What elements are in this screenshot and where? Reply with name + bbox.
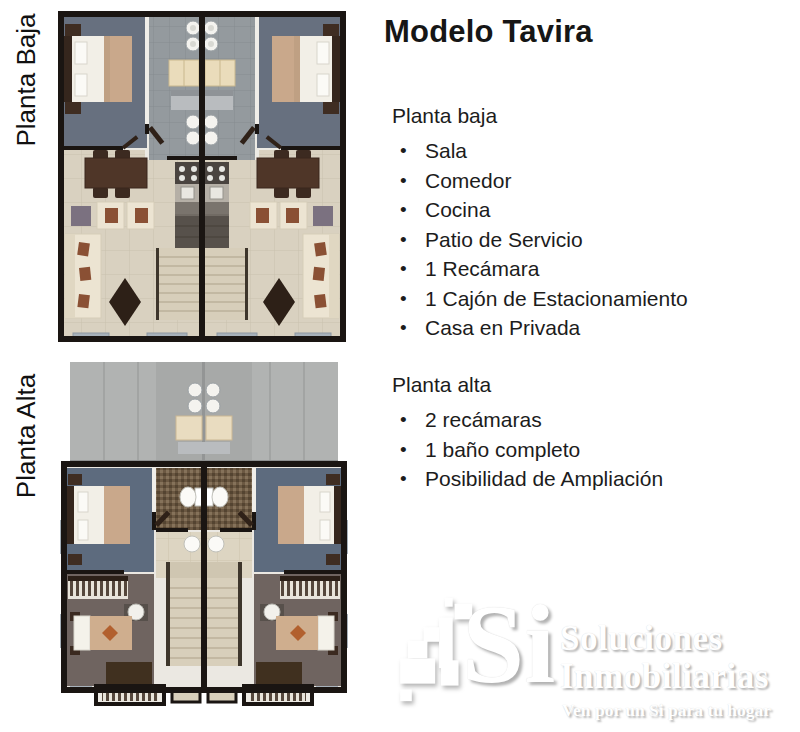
- list-item: 1 Recámara: [392, 254, 790, 284]
- list-item: Comedor: [392, 166, 790, 196]
- planta-alta-floorplan: [58, 362, 350, 707]
- si-logo-mark: Si: [462, 588, 555, 700]
- planta-alta-heading: Planta alta: [392, 373, 790, 397]
- washer: [171, 90, 199, 110]
- closet: [68, 576, 128, 599]
- planta-baja-heading: Planta baja: [392, 104, 790, 128]
- dresser: [106, 662, 152, 684]
- list-item: Casa en Privada: [392, 313, 790, 343]
- planta-alta-features: Planta alta 2 recámaras 1 baño completo …: [392, 373, 790, 494]
- bed: [63, 24, 132, 114]
- company-name: Soluciones Inmobiliarias: [560, 620, 769, 696]
- party-wall: [199, 14, 205, 339]
- page-title: Modelo Tavira: [384, 14, 593, 50]
- list-item: Sala: [392, 136, 790, 166]
- list-item: Cocina: [392, 195, 790, 225]
- planta-alta-side-label: Planta Alta: [9, 361, 43, 511]
- planta-baja-side-label: Planta Baja: [9, 5, 43, 155]
- list-item: 1 baño completo: [392, 435, 790, 465]
- side-table: [71, 206, 91, 226]
- brochure-page: Planta Baja Planta Alta: [0, 0, 800, 732]
- planta-baja-list: Sala Comedor Cocina Patio de Servicio 1 …: [392, 136, 790, 343]
- company-name-line1: Soluciones: [560, 620, 769, 658]
- planta-alta-list: 2 recámaras 1 baño completo Posibilidad …: [392, 405, 790, 494]
- list-item: 1 Cajón de Estacionamiento: [392, 284, 790, 314]
- planta-baja-left-unit: [59, 16, 202, 340]
- sofa: [65, 234, 101, 318]
- list-item: Posibilidad de Ampliación: [392, 464, 790, 494]
- planta-baja-features: Planta baja Sala Comedor Cocina Patio de…: [392, 104, 790, 343]
- list-item: 2 recámaras: [392, 405, 790, 435]
- party-wall: [201, 464, 207, 690]
- planta-baja-floorplan: [57, 10, 347, 343]
- company-tagline: Ven por un Si para tu hogar: [562, 700, 771, 721]
- roof: [70, 362, 338, 465]
- single-bed: [70, 612, 132, 655]
- toilet: [180, 487, 203, 507]
- sink: [184, 536, 200, 552]
- list-item: Patio de Servicio: [392, 225, 790, 255]
- company-name-line2: Inmobiliarias: [560, 658, 769, 696]
